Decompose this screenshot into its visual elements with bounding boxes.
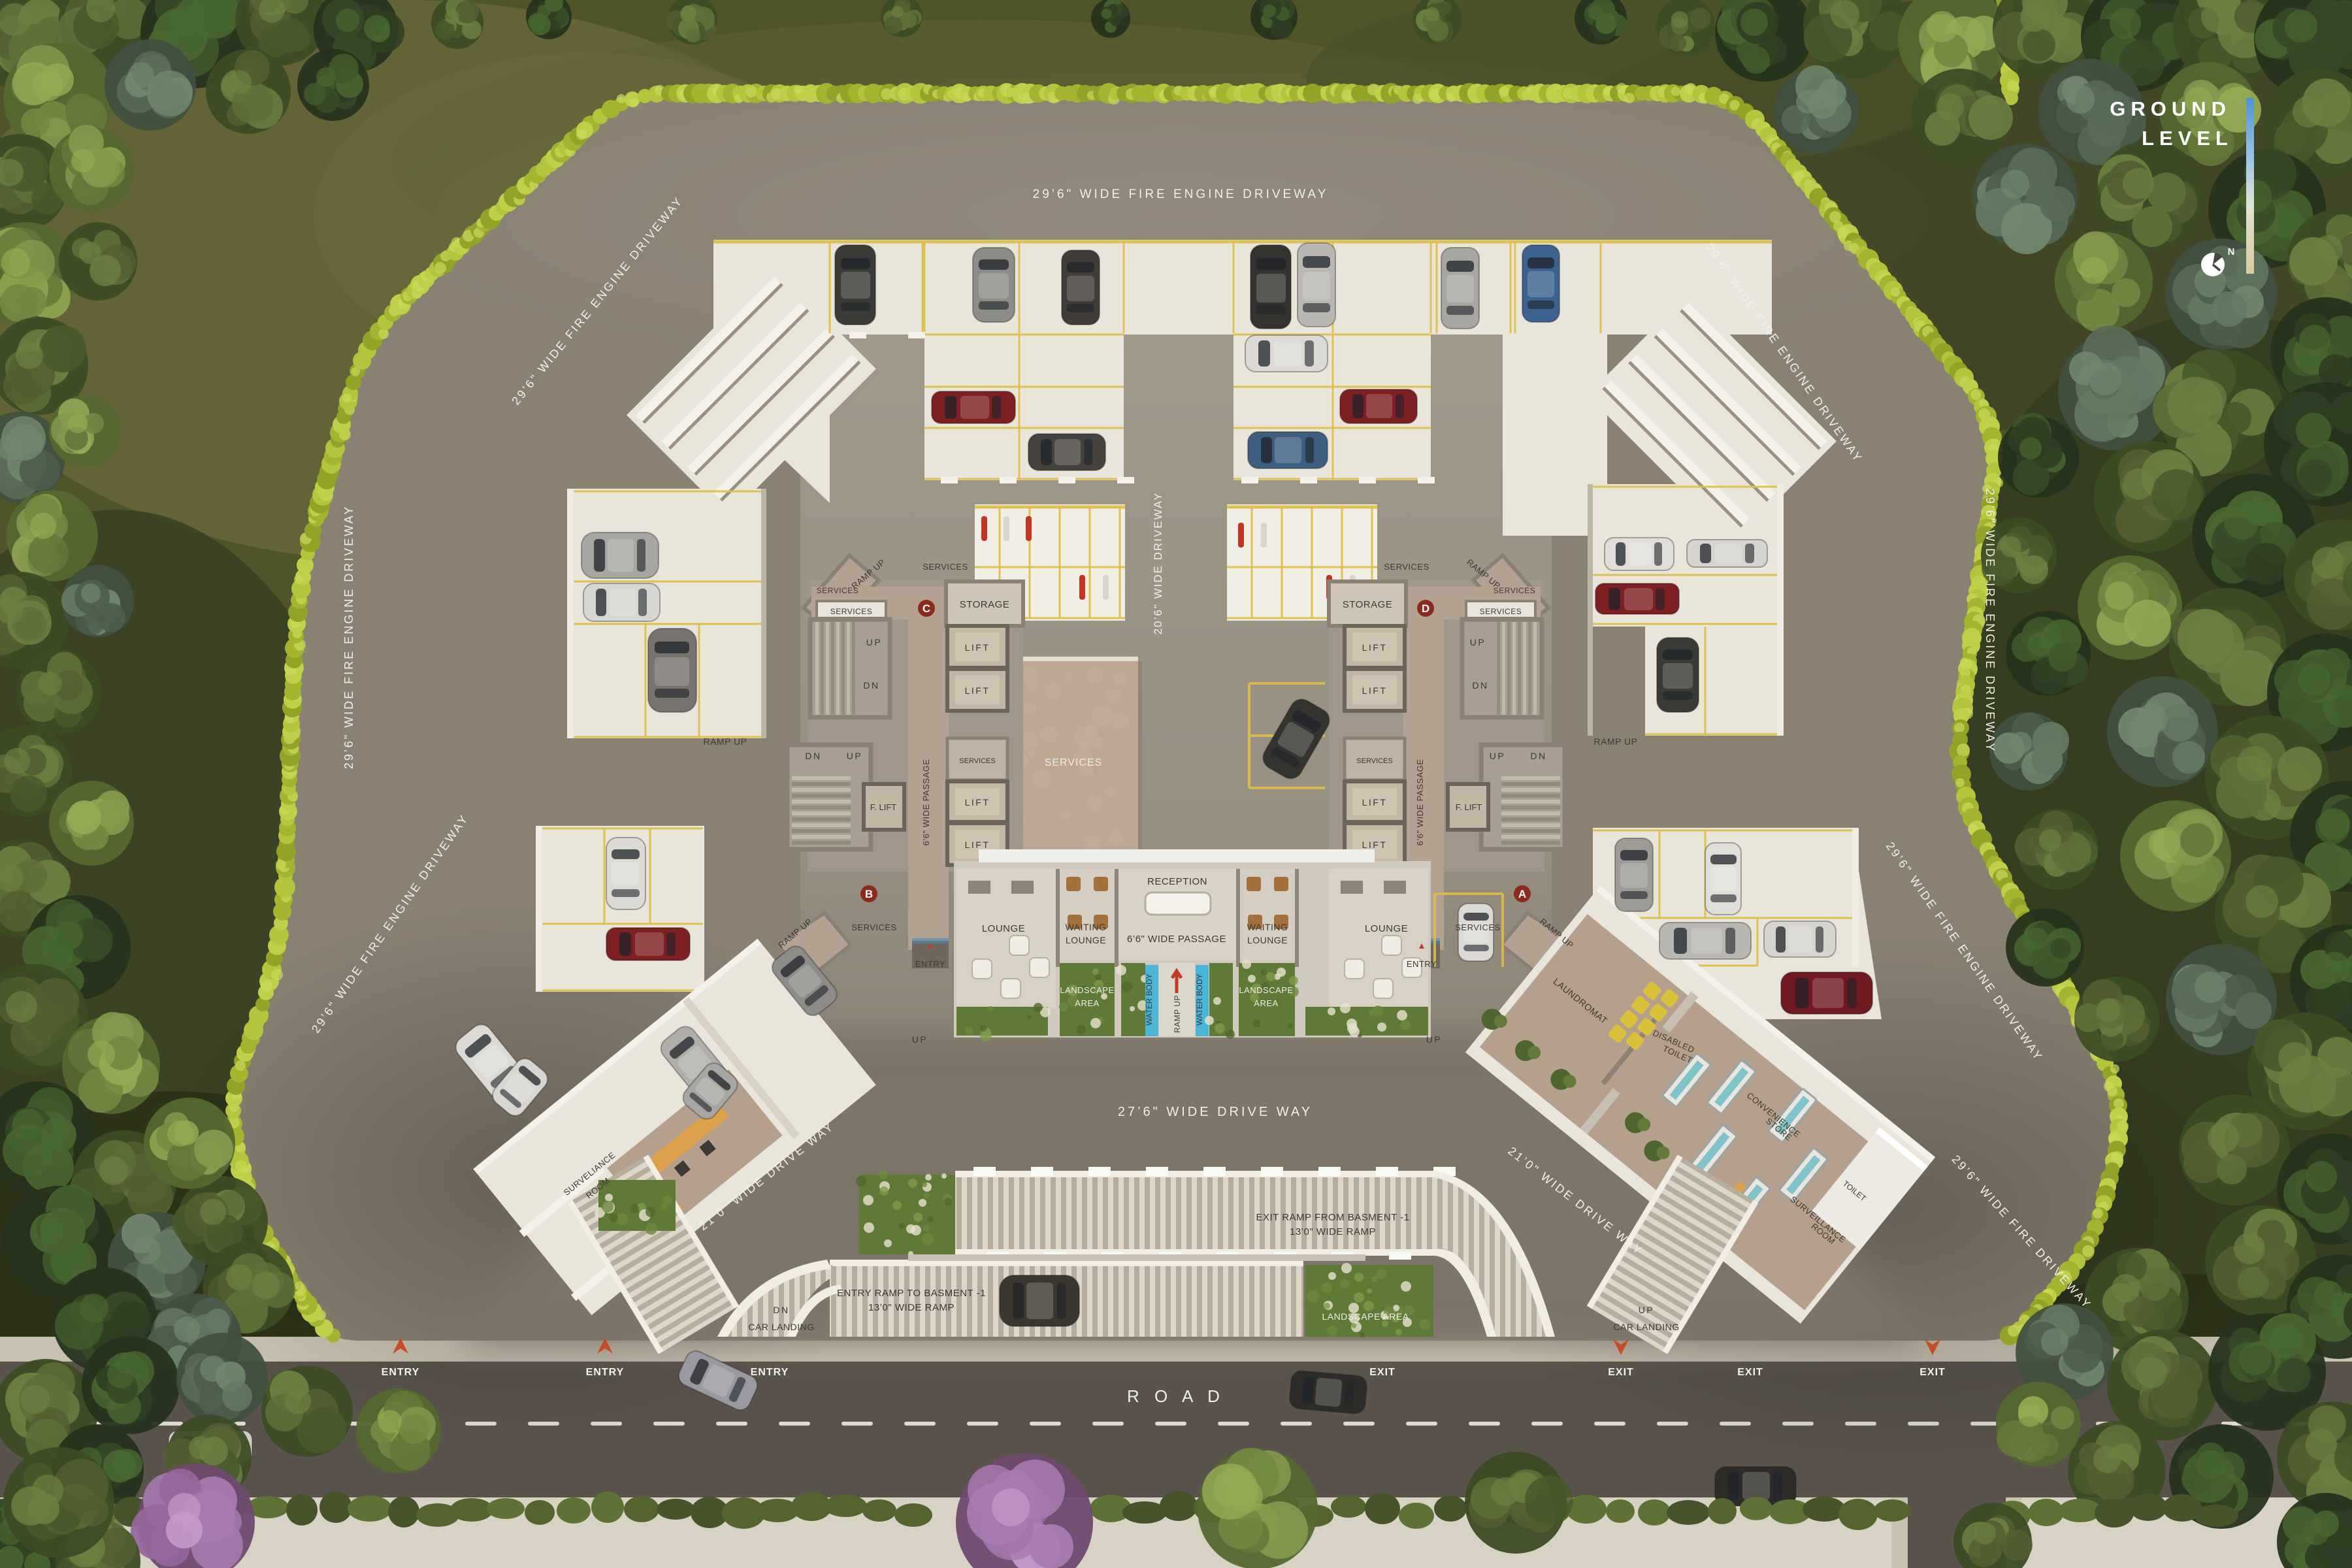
svg-text:DN: DN <box>1530 751 1546 761</box>
svg-text:LOUNGE: LOUNGE <box>982 923 1025 934</box>
svg-text:LIFT: LIFT <box>965 685 990 696</box>
svg-text:RAMP UP: RAMP UP <box>1173 995 1182 1033</box>
svg-text:EXIT: EXIT <box>1737 1367 1763 1378</box>
svg-text:WAITING: WAITING <box>1066 922 1107 932</box>
svg-text:EXIT: EXIT <box>1919 1367 1946 1378</box>
svg-text:SERVICES: SERVICES <box>1455 923 1501 932</box>
svg-text:29’6" WIDE FIRE ENGINE DRIVEWA: 29’6" WIDE FIRE ENGINE DRIVEWAY <box>342 505 355 769</box>
svg-text:CAR LANDING: CAR LANDING <box>748 1322 814 1332</box>
svg-text:R O A D: R O A D <box>1127 1386 1225 1406</box>
svg-text:F. LIFT: F. LIFT <box>1456 802 1482 812</box>
svg-text:LIFT: LIFT <box>965 797 990 808</box>
svg-text:27’6" WIDE DRIVE WAY: 27’6" WIDE DRIVE WAY <box>1118 1105 1313 1119</box>
svg-text:LANDSCAPE: LANDSCAPE <box>1239 985 1293 995</box>
svg-text:GROUND: GROUND <box>2110 97 2231 120</box>
svg-text:ENTRY RAMP TO BASMENT -1: ENTRY RAMP TO BASMENT -1 <box>837 1288 986 1299</box>
svg-text:STORAGE: STORAGE <box>1343 599 1393 610</box>
svg-text:LOUNGE: LOUNGE <box>1247 935 1288 945</box>
svg-text:RAMP UP: RAMP UP <box>703 736 747 747</box>
svg-text:SERVICES: SERVICES <box>851 923 897 932</box>
svg-text:ENTRY: ENTRY <box>1407 959 1437 969</box>
svg-text:CAR LANDING: CAR LANDING <box>1613 1322 1679 1332</box>
svg-text:ENTRY: ENTRY <box>586 1367 625 1378</box>
svg-text:EXIT: EXIT <box>1608 1367 1634 1378</box>
svg-text:ENTRY: ENTRY <box>751 1367 789 1378</box>
svg-text:ENTRY: ENTRY <box>915 959 945 969</box>
svg-text:LIFT: LIFT <box>1362 840 1388 850</box>
svg-text:AREA: AREA <box>1075 998 1099 1008</box>
svg-text:LIFT: LIFT <box>1362 685 1388 696</box>
svg-text:SERVICES: SERVICES <box>1384 562 1429 572</box>
svg-text:UP: UP <box>912 1034 928 1045</box>
svg-text:13’0" WIDE RAMP: 13’0" WIDE RAMP <box>868 1302 955 1313</box>
svg-text:D: D <box>1422 602 1429 615</box>
svg-text:LIFT: LIFT <box>965 840 990 850</box>
svg-text:F. LIFT: F. LIFT <box>870 802 897 812</box>
svg-text:UP: UP <box>866 637 882 647</box>
svg-text:UP: UP <box>1639 1305 1654 1315</box>
svg-text:N: N <box>2228 246 2235 257</box>
svg-text:DN: DN <box>805 751 821 761</box>
svg-text:SERVICES: SERVICES <box>1480 607 1522 616</box>
svg-text:13’0" WIDE RAMP: 13’0" WIDE RAMP <box>1290 1226 1376 1237</box>
svg-text:29’6" WIDE FIRE ENGINE DRIVEW: 29’6" WIDE FIRE ENGINE DRIVEWAY <box>1033 188 1329 201</box>
svg-text:SERVICES: SERVICES <box>1045 757 1103 768</box>
svg-text:6’6" WIDE PASSAGE: 6’6" WIDE PASSAGE <box>1127 934 1226 945</box>
svg-text:20’6" WIDE DRIVEWAY: 20’6" WIDE DRIVEWAY <box>1152 492 1164 635</box>
svg-text:LANDSCAPE AREA: LANDSCAPE AREA <box>1322 1311 1409 1322</box>
svg-text:LIFT: LIFT <box>1362 642 1388 653</box>
svg-text:6’6" WIDE PASSAGE: 6’6" WIDE PASSAGE <box>921 759 931 846</box>
svg-text:LANDSCAPE: LANDSCAPE <box>1060 985 1114 995</box>
svg-text:C: C <box>923 602 930 615</box>
svg-text:SERVICES: SERVICES <box>830 607 872 616</box>
svg-text:RECEPTION: RECEPTION <box>1147 876 1207 887</box>
svg-text:ENTRY: ENTRY <box>382 1367 420 1378</box>
svg-text:UP: UP <box>847 751 862 761</box>
svg-text:LEVEL: LEVEL <box>2142 127 2233 150</box>
svg-text:B: B <box>865 888 873 900</box>
svg-text:29’6" WIDE FIRE ENGINE DRIVEWA: 29’6" WIDE FIRE ENGINE DRIVEWAY <box>1984 489 1997 753</box>
svg-text:UP: UP <box>1426 1034 1442 1045</box>
svg-text:SERVICES: SERVICES <box>923 562 968 572</box>
svg-text:DN: DN <box>863 680 879 691</box>
svg-text:SERVICES: SERVICES <box>959 757 995 765</box>
svg-text:DN: DN <box>1472 680 1488 691</box>
svg-text:SERVICES: SERVICES <box>1494 586 1535 595</box>
svg-text:LIFT: LIFT <box>1362 797 1388 808</box>
svg-text:DN: DN <box>773 1305 789 1315</box>
svg-text:A: A <box>1518 888 1526 900</box>
svg-text:LOUNGE: LOUNGE <box>1365 923 1408 934</box>
svg-text:WAITING: WAITING <box>1247 922 1288 932</box>
svg-text:WATER BODY: WATER BODY <box>1145 973 1154 1025</box>
svg-text:6’6" WIDE PASSAGE: 6’6" WIDE PASSAGE <box>1415 759 1425 846</box>
svg-text:RAMP UP: RAMP UP <box>1593 736 1637 747</box>
svg-text:SERVICES: SERVICES <box>1356 757 1392 765</box>
svg-text:LIFT: LIFT <box>965 642 990 653</box>
svg-text:WATER BODY: WATER BODY <box>1195 973 1204 1025</box>
svg-text:EXIT: EXIT <box>1369 1367 1396 1378</box>
svg-text:UP: UP <box>1470 637 1486 647</box>
svg-text:AREA: AREA <box>1254 998 1278 1008</box>
svg-text:STORAGE: STORAGE <box>960 599 1010 610</box>
svg-text:LOUNGE: LOUNGE <box>1066 935 1106 945</box>
svg-text:UP: UP <box>1490 751 1505 761</box>
svg-text:EXIT RAMP FROM BASMENT -1: EXIT RAMP FROM BASMENT -1 <box>1256 1212 1409 1223</box>
